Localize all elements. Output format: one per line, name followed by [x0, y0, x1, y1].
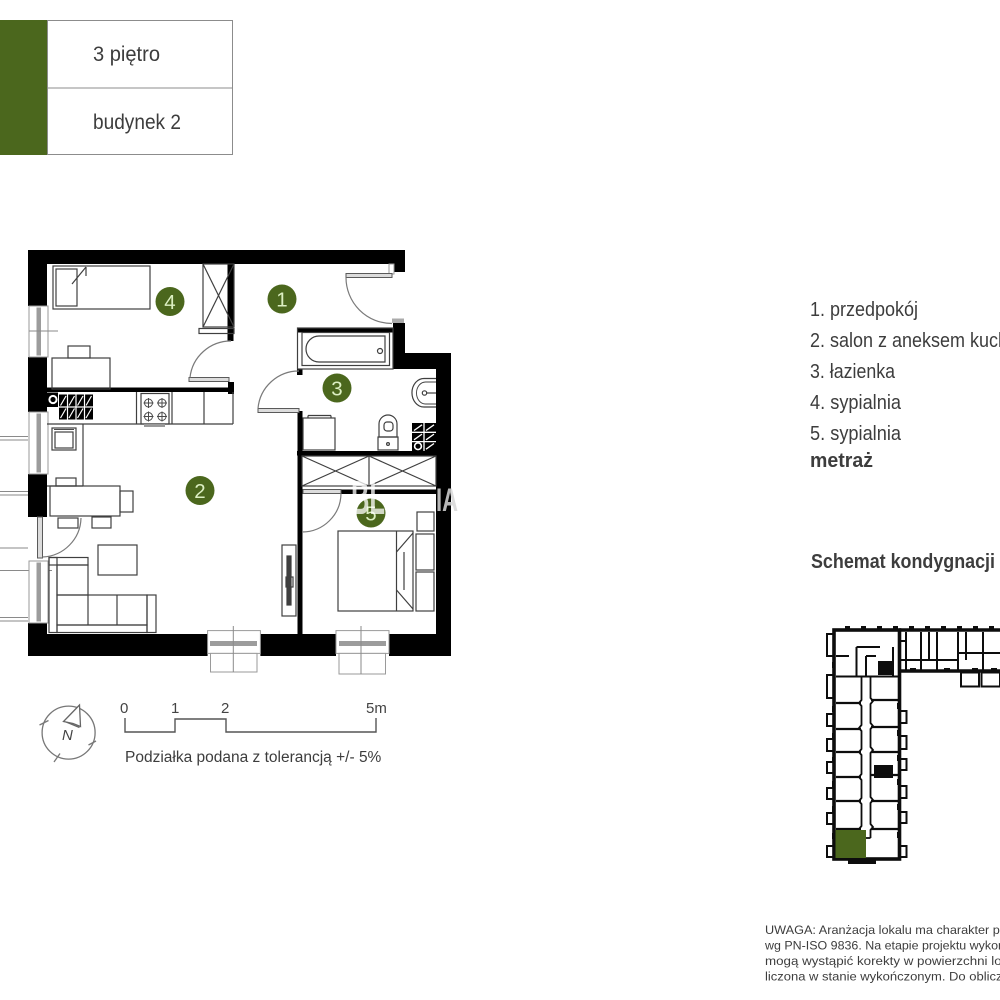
svg-text:1: 1	[276, 289, 287, 312]
svg-text:3 piętro: 3 piętro	[93, 43, 160, 66]
svg-text:4. sypialnia: 4. sypialnia	[810, 392, 902, 414]
svg-text:5m: 5m	[366, 700, 387, 717]
svg-text:Podziałka podana z tolerancją: Podziałka podana z tolerancją +/- 5%	[125, 749, 382, 766]
svg-text:budynek 2: budynek 2	[93, 111, 181, 134]
svg-text:3: 3	[331, 378, 342, 401]
svg-text:2: 2	[221, 700, 229, 717]
svg-text:wg PN-ISO 9836. Na etapie proj: wg PN-ISO 9836. Na etapie projektu wykon…	[764, 939, 1000, 953]
svg-text:N: N	[62, 727, 73, 744]
svg-text:metraż: metraż	[810, 450, 873, 472]
svg-text:UWAGA: Aranżacja lokalu ma cha: UWAGA: Aranżacja lokalu ma charakter pog…	[765, 923, 1000, 937]
svg-text:2: 2	[194, 480, 205, 503]
svg-text:1: 1	[171, 700, 179, 717]
svg-text:3. łazienka: 3. łazienka	[810, 361, 896, 383]
svg-text:BL: BL	[351, 472, 385, 525]
svg-text:Schemat kondygnacji: Schemat kondygnacji	[811, 551, 995, 573]
svg-text:4: 4	[164, 291, 175, 314]
svg-text:IA: IA	[436, 482, 458, 518]
svg-text:liczona w stanie wykończonym.: liczona w stanie wykończonym. Do oblicze…	[765, 970, 1000, 984]
svg-text:2. salon z aneksem kuchennym: 2. salon z aneksem kuchennym	[810, 330, 1000, 352]
svg-text:5. sypialnia: 5. sypialnia	[810, 423, 902, 445]
svg-text:1. przedpokój: 1. przedpokój	[810, 299, 918, 321]
svg-text:0: 0	[120, 700, 128, 717]
svg-text:mogą wystąpić korekty w powier: mogą wystąpić korekty w powierzchni loka…	[765, 954, 1000, 968]
